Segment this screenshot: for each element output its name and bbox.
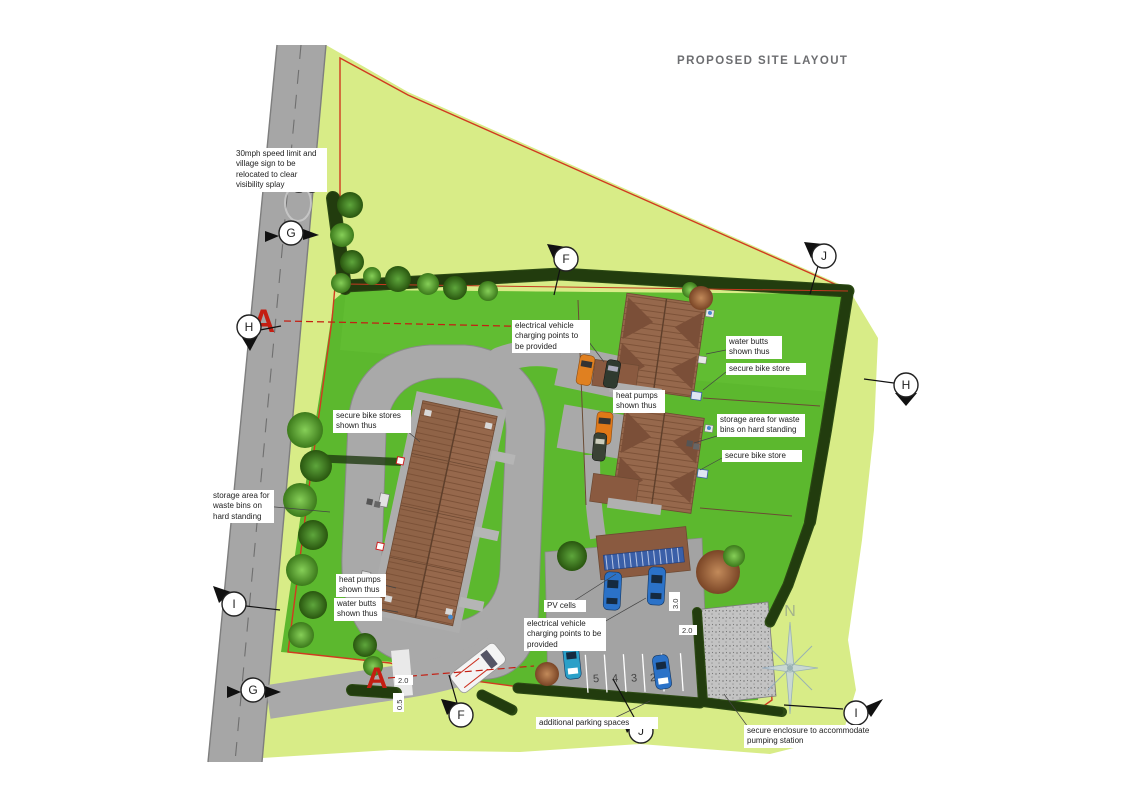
note-speed-sign: 30mph speed limit and village sign to be… — [233, 148, 327, 192]
svg-text:F: F — [457, 708, 464, 722]
dim-parking-width: 2.0 — [682, 626, 692, 635]
note-ev-charging-top: electrical vehicle charging points to be… — [512, 320, 590, 353]
dim-entrance-verge: 0.5 — [395, 700, 404, 710]
note-heat-pumps-right: heat pumps shown thus — [613, 390, 665, 413]
svg-text:H: H — [245, 320, 254, 334]
parking-space-number: 3 — [631, 672, 638, 684]
water-butt-icon — [698, 356, 707, 364]
svg-text:I: I — [854, 706, 857, 720]
note-bike-store-right-upper: secure bike store — [726, 363, 806, 375]
note-pv-cells: PV cells — [544, 600, 586, 612]
section-letter-a-bottom: A — [366, 662, 388, 695]
note-pumping-station: secure enclosure to accommodate pumping … — [744, 725, 876, 748]
heat-pump-icon — [376, 542, 384, 550]
heat-pump-icon — [396, 457, 404, 465]
note-water-butts-left: water butts shown thus — [334, 598, 382, 621]
svg-text:F: F — [562, 252, 569, 266]
note-additional-parking: additional parking spaces — [536, 717, 658, 729]
north-label: N — [784, 603, 796, 620]
note-bike-store-right-lower: secure bike store — [722, 450, 802, 462]
blue-car — [647, 567, 666, 606]
bike-store-icon — [697, 469, 708, 478]
dim-parking-depth: 3.0 — [671, 599, 680, 609]
svg-text:G: G — [248, 683, 257, 697]
note-storage-right: storage area for waste bins on hard stan… — [717, 414, 805, 437]
waste-bin-icon — [366, 498, 373, 505]
note-water-butts-right: water butts shown thus — [726, 336, 782, 359]
waste-bin-icon — [693, 443, 700, 450]
svg-text:H: H — [902, 378, 911, 392]
waste-bin-icon — [374, 501, 381, 508]
dim-entrance-width: 2.0 — [398, 676, 408, 685]
drawing-title: PROPOSED SITE LAYOUT — [677, 55, 848, 67]
bike-store-icon — [691, 391, 702, 400]
svg-text:G: G — [286, 226, 295, 240]
blue-car — [603, 572, 622, 611]
svg-text:I: I — [232, 597, 235, 611]
note-bike-stores-left: secure bike stores shown thus — [333, 410, 411, 433]
site-plan-sheet: 30 — [0, 0, 1132, 800]
dark-car — [592, 432, 607, 461]
note-ev-charging-bottom: electrical vehicle charging points to be… — [524, 618, 606, 651]
site-plan-drawing: 30 — [0, 0, 1132, 800]
waste-bin-icon — [686, 440, 693, 447]
note-heat-pumps-left: heat pumps shown thus — [336, 574, 386, 597]
svg-text:J: J — [821, 249, 827, 263]
note-storage-left: storage area for waste bins on hard stan… — [210, 490, 274, 523]
parking-space-number: 5 — [593, 673, 600, 685]
